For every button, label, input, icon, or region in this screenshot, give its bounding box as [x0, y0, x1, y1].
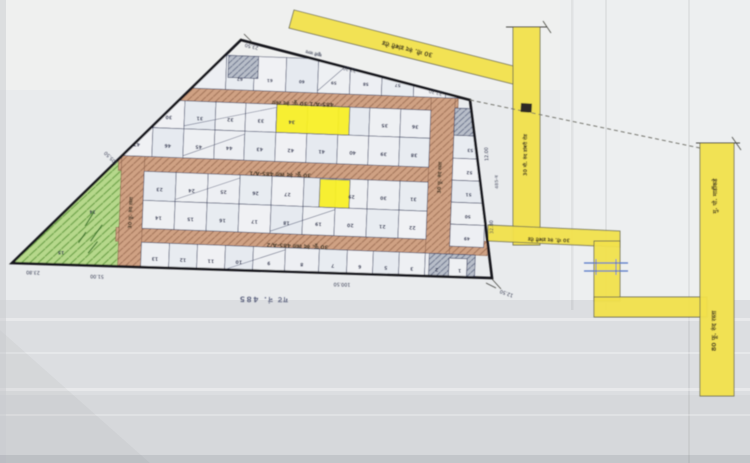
plot-number: 1: [458, 267, 462, 273]
plot-number: 41: [318, 148, 325, 154]
road-label: मु. पो. मार्डीकडे: [711, 178, 719, 215]
plot-number: 22: [409, 224, 416, 230]
road-blot-mark: [521, 103, 532, 113]
plot-number: 26: [251, 189, 259, 195]
plot-number: 24: [187, 187, 195, 193]
road-label: 80 फू. रुंद रस्ता: [710, 310, 718, 351]
plot-number: 20: [346, 222, 354, 228]
map-caption: गट नं. 485: [238, 295, 289, 305]
scanned-survey-map: 1415545352515049626160595857565529303132…: [0, 0, 750, 463]
plot-number: 58: [363, 82, 369, 87]
plot-number: 33: [257, 117, 264, 123]
plot-number: 31: [410, 196, 417, 202]
plot-cell: [448, 258, 467, 277]
plot-number: 32: [227, 116, 234, 122]
plot-number: 14: [89, 208, 96, 214]
hatched-apex-cell: [228, 55, 259, 78]
plot-number: 35: [381, 122, 388, 128]
plot-number: 29: [347, 193, 355, 199]
plot-number: 15: [187, 216, 194, 222]
plot-number: 46: [164, 142, 172, 148]
paper-streak: [0, 352, 750, 354]
plot-number: 50: [465, 213, 471, 219]
plot-number: 52: [466, 169, 472, 175]
plot-number: 61: [267, 78, 273, 83]
plot-number: 25: [220, 188, 227, 194]
plot-number: 19: [314, 220, 322, 226]
plot-number: 10: [235, 258, 243, 264]
plot-number: 16: [218, 217, 226, 223]
measurement-label: 100.50: [333, 281, 350, 288]
paper-fold-line: [688, 0, 690, 463]
road-label: 30 फू. रुंद रस्ता: [127, 196, 135, 229]
paper-streak: [0, 318, 750, 321]
highlighted-plot-29: [319, 179, 350, 208]
plot-number: 39: [380, 150, 388, 156]
plot-number: 49: [464, 235, 470, 241]
plot-number: 18: [282, 219, 290, 225]
plot-number: 43: [256, 146, 263, 152]
road-label: 30 फू. रुंद रस्ता: [436, 161, 444, 194]
highlighted-plot-34: [276, 104, 350, 135]
plot-cell: [285, 58, 318, 93]
measurement-label: 51.00: [90, 273, 104, 279]
measurement-label: 23.80: [26, 269, 40, 275]
plot-number: 44: [225, 144, 233, 150]
plot-number: 7: [331, 262, 335, 268]
plot-number: 23: [156, 186, 163, 192]
plot-number: 51: [465, 191, 471, 197]
plot-number: 62: [237, 77, 243, 82]
paper-fold-line: [571, 0, 574, 310]
plot-number: 12: [179, 256, 186, 262]
road-label: 30 मी. रुंद डांबरी रोड: [528, 235, 570, 243]
plot-number: 27: [284, 191, 291, 197]
plot-number: 53: [467, 147, 473, 153]
paper-streak: [0, 414, 750, 416]
plot-number: 3: [410, 265, 414, 271]
plot-number: 15: [58, 249, 65, 255]
plot-number: 45: [195, 143, 202, 149]
measurement-label: 32.80: [489, 220, 495, 234]
paper-streak: [0, 388, 750, 391]
plot-number: 13: [151, 255, 158, 261]
plot-number: 5: [384, 264, 388, 270]
plot-number: 14: [154, 214, 162, 220]
plot-number: 17: [251, 218, 258, 224]
plot-number: 34: [288, 118, 296, 124]
plot-number: 31: [196, 115, 203, 121]
measurement-label: 12.00: [484, 147, 490, 161]
survey-map-canvas: 1415545352515049626160595857565529303132…: [0, 0, 750, 463]
paper-edge-shadow: [0, 0, 6, 463]
road-label: 485-ब: [494, 175, 500, 189]
plot-number: 36: [411, 123, 419, 129]
road-label: 30 मी. रुंद डांबरी रोड: [522, 134, 529, 176]
plot-number: 30: [379, 194, 387, 200]
plot-number: 21: [379, 223, 386, 229]
plot-number: 59: [331, 80, 337, 85]
plot-number: 42: [287, 147, 294, 153]
plot-number: 40: [349, 149, 357, 155]
yellow-road-elbow-horizontal: [594, 297, 707, 317]
plot-number: 2: [435, 266, 439, 272]
plot-number: 11: [207, 257, 214, 263]
paper-edge-shadow: [0, 455, 750, 463]
plot-number: 60: [299, 79, 305, 84]
plot-number: 57: [395, 83, 401, 88]
plot-number: 38: [410, 152, 418, 158]
